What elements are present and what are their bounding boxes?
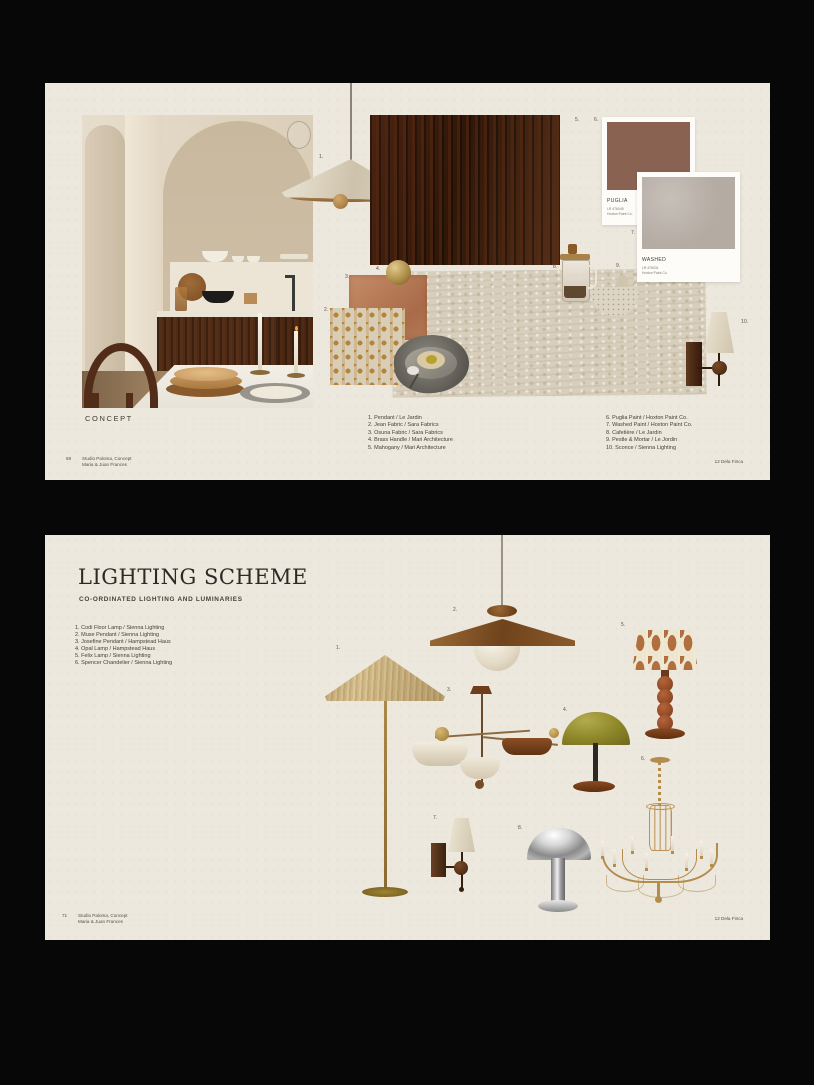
photo-white-plate [250, 386, 302, 399]
marker-5: 5. [575, 117, 580, 123]
credit-line: 8. Cafetière / Le Jardin [606, 430, 692, 437]
marker-3: 3. [447, 687, 452, 693]
studio-line: Studio Paloma, Concept [78, 913, 128, 919]
marker-6: 6. [594, 117, 599, 123]
pendant-cord [350, 83, 352, 161]
opal-lamp-dome [562, 712, 630, 745]
sconce2-backplate [431, 843, 446, 877]
josefine-bottom-ball [475, 780, 484, 789]
felix-lamp-shade [632, 630, 698, 670]
photo-chair-leg [126, 393, 133, 408]
mahogany-panel-swatch [370, 115, 560, 265]
credit-line: 10. Sconce / Sienna Lighting [606, 445, 692, 452]
photo-candle-short [294, 331, 298, 375]
floor-lamp-base [362, 887, 408, 897]
marker-1: 1. [319, 154, 324, 160]
marker-5: 5. [621, 622, 626, 628]
cafetiere-knob [568, 244, 577, 254]
spread-canvas: PUGLIA LR 476045 Hoxton Paint Co. WASHED… [0, 0, 814, 1085]
photo-candle-tall [258, 313, 262, 371]
cafetiere-coffee [564, 286, 586, 298]
marker-7: 7. [631, 230, 636, 236]
lamp-list-item: 1. Codi Floor Lamp / Sienna Lighting [75, 625, 172, 632]
marker-4: 4. [563, 707, 568, 713]
photo-shelf-plate [280, 254, 308, 259]
chandelier-candle [601, 841, 604, 859]
credit-line: 6. Puglia Paint / Hoxton Paint Co. [606, 415, 692, 422]
photo-chair-leg [92, 393, 99, 408]
chrome-lamp-dome [527, 828, 591, 860]
lamp-list-item: 6. Spencer Chandelier / Sienna Lighting [75, 660, 172, 667]
page-subtitle: CO-ORDINATED LIGHTING AND LUMINARIES [79, 596, 243, 603]
photo-candle-holder [287, 373, 305, 378]
credit-line: 7. Washed Paint / Hoxton Paint Co. [606, 422, 692, 429]
sconce-rod [718, 374, 720, 386]
paint-code: LR 476031 [642, 266, 659, 270]
chandelier-candle [685, 853, 688, 871]
pendant-wood-ball [333, 194, 348, 209]
muse-cord [501, 535, 503, 609]
photo-candle-holder [250, 370, 270, 375]
cafetiere-handle [588, 265, 597, 289]
lamp-list-item: 5. Felix Lamp / Sienna Lighting [75, 653, 172, 660]
lamp-list-item: 2. Muse Pendant / Sienna Lighting [75, 632, 172, 639]
osuna-fabric-swatch [330, 308, 405, 385]
studio-line: Maria & Juan Frances [82, 462, 132, 468]
marker-4: 4. [376, 266, 381, 272]
muse-saucer-shade [430, 619, 575, 649]
studio-line: Studio Paloma, Concept [82, 456, 132, 462]
sconce2-wood-ball [454, 861, 468, 875]
project-name: 12 Dela Finca [715, 459, 743, 465]
chrome-lamp-base [538, 900, 578, 912]
brass-handle [386, 260, 411, 285]
lamp-list: 1. Codi Floor Lamp / Sienna Lighting 2. … [75, 625, 172, 666]
credit-line: 9. Pestle & Mortar / Le Jordin [606, 437, 692, 444]
paint-name: WASHED [642, 257, 666, 263]
page-number: 71 [62, 913, 67, 919]
lamp-list-item: 4. Opal Lamp / Hampstead Haus [75, 646, 172, 653]
paint-square-washed [642, 177, 735, 249]
marker-6: 6. [641, 756, 646, 762]
spencer-chandelier [598, 757, 720, 912]
josefine-stem [481, 693, 483, 757]
paint-name: PUGLIA [607, 198, 628, 204]
marker-8: 8. [518, 825, 523, 831]
sconce-wood-ball [712, 361, 727, 375]
studio-credit: Studio Paloma, Concept Maria & Juan Fran… [82, 456, 132, 468]
josefine-dome [460, 757, 500, 779]
muse-wood-finial [487, 605, 517, 617]
marker-7: 7. [433, 815, 438, 821]
project-name: 12 Dela Finca [715, 916, 743, 922]
josefine-wood-dish [502, 738, 552, 755]
photo-amber-jar [175, 287, 187, 311]
photo-faucet [292, 275, 295, 311]
josefine-pendant [410, 685, 560, 791]
josefine-brass-ball [549, 728, 559, 738]
photo-faucet-spout [285, 275, 295, 278]
sconce2-rod [461, 874, 463, 888]
egg-yolk [426, 355, 437, 364]
studio-line: Maria & Juan Frances [78, 919, 128, 925]
sconce-backplate [686, 342, 702, 386]
chandelier-candle [631, 836, 634, 854]
interior-photo [82, 115, 313, 408]
page-lighting-scheme: LIGHTING SCHEME CO-ORDINATED LIGHTING AN… [45, 535, 770, 940]
credit-line: 1. Pendant / Le Jardin [368, 415, 453, 422]
credit-line: 5. Mahogany / Mari Architecture [368, 445, 453, 452]
paint-brand: Hoxton Paint Co. [607, 212, 633, 216]
credits-left: 1. Pendant / Le Jardin 2. Jean Fabric / … [368, 415, 453, 452]
marker-2: 2. [324, 307, 329, 313]
lamp-list-item: 3. Josefine Pendant / Hampstead Haus [75, 639, 172, 646]
sconce-shade [704, 312, 734, 353]
photo-box [244, 293, 257, 304]
credit-line: 2. Jean Fabric / Sara Fabrics [368, 422, 453, 429]
floor-lamp-stem [384, 698, 387, 890]
chandelier-candle [710, 849, 713, 867]
marker-2: 2. [453, 607, 458, 613]
photo-plate-top [174, 367, 238, 381]
sconce2-finial [459, 887, 464, 892]
credit-line: 4. Brass Handle / Mari Architecture [368, 437, 453, 444]
chandelier-candle [645, 853, 648, 871]
section-label: CONCEPT [85, 414, 133, 423]
sconce2-shade [448, 818, 475, 852]
chrome-lamp-stem [551, 858, 565, 904]
chandelier-chain [658, 762, 661, 805]
credit-line: 3. Osuna Fabric / Sara Fabrics [368, 430, 453, 437]
chandelier-candle [671, 836, 674, 854]
paint-code: LR 476045 [607, 207, 624, 211]
marker-9: 9. [616, 263, 621, 269]
felix-lamp-base [645, 728, 685, 739]
chandelier-swag [678, 875, 716, 892]
chandelier-finial-rod [657, 881, 660, 897]
credits-right: 6. Puglia Paint / Hoxton Paint Co. 7. Wa… [606, 415, 692, 452]
photo-glass-ornament [287, 121, 311, 149]
marker-8: 8. [553, 264, 558, 270]
chandelier-finial-ball [655, 896, 662, 903]
studio-credit: Studio Paloma, Concept Maria & Juan Fran… [78, 913, 128, 925]
marker-3: 3. [345, 274, 350, 280]
chandelier-candle [613, 849, 616, 867]
paint-card-washed: WASHED LR 476031 Hoxton Paint Co. [637, 172, 740, 282]
page-title: LIGHTING SCHEME [78, 565, 308, 589]
paint-brand: Hoxton Paint Co. [642, 271, 668, 275]
marker-1: 1. [336, 645, 341, 651]
marker-10: 10. [741, 319, 749, 325]
josefine-brass-ball [435, 727, 449, 741]
chandelier-candle [700, 841, 703, 859]
page-concept: PUGLIA LR 476045 Hoxton Paint Co. WASHED… [45, 83, 770, 480]
page-number: 68 [66, 456, 71, 462]
